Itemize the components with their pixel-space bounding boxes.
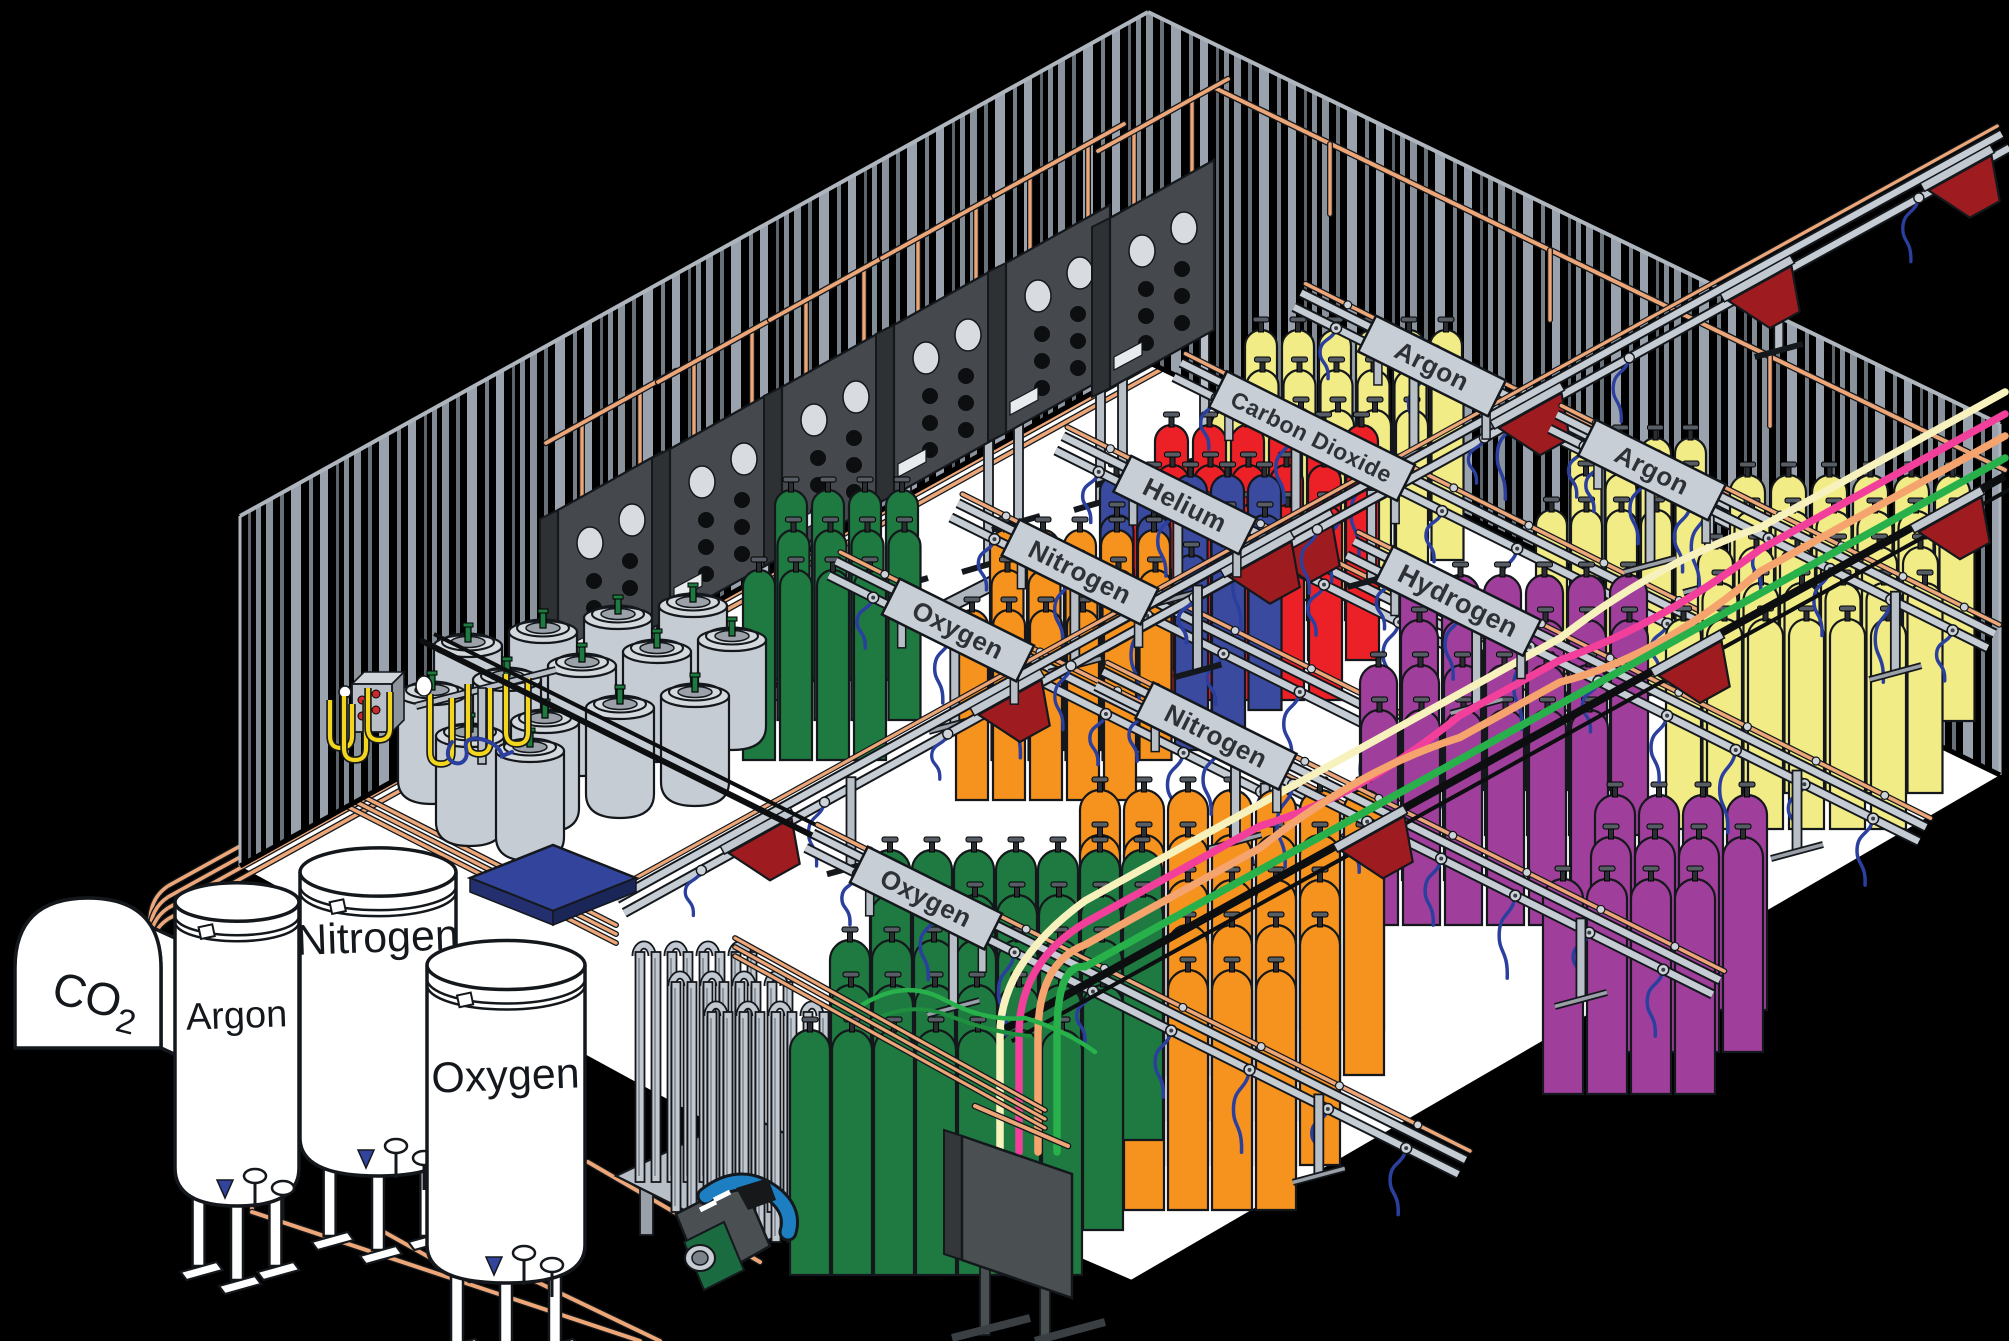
gauge-icon [619,504,645,536]
gauge-icon [1067,257,1093,289]
tank-label: Oxygen [431,1049,581,1102]
gas-plant-illustration: CO2ArgonNitrogenOxygenOxygenNitrogenHeli… [0,0,2009,1341]
argon-storage-tank: Argon [175,883,299,1294]
gauge-icon [801,404,827,436]
gauge-icon [955,319,981,351]
tank-label: Argon [185,993,288,1039]
gauge-icon [913,342,939,374]
gauge-icon [689,466,715,498]
gauge-icon [843,381,869,413]
button-icon [372,706,380,714]
gauge-icon [577,527,603,559]
gauge-icon [1025,280,1051,312]
gauge-icon [1129,235,1155,267]
gauge-icon [731,443,757,475]
button-icon [372,690,380,698]
oxygen-storage-tank: Oxygen [427,941,585,1341]
gauge-icon [1171,212,1197,244]
